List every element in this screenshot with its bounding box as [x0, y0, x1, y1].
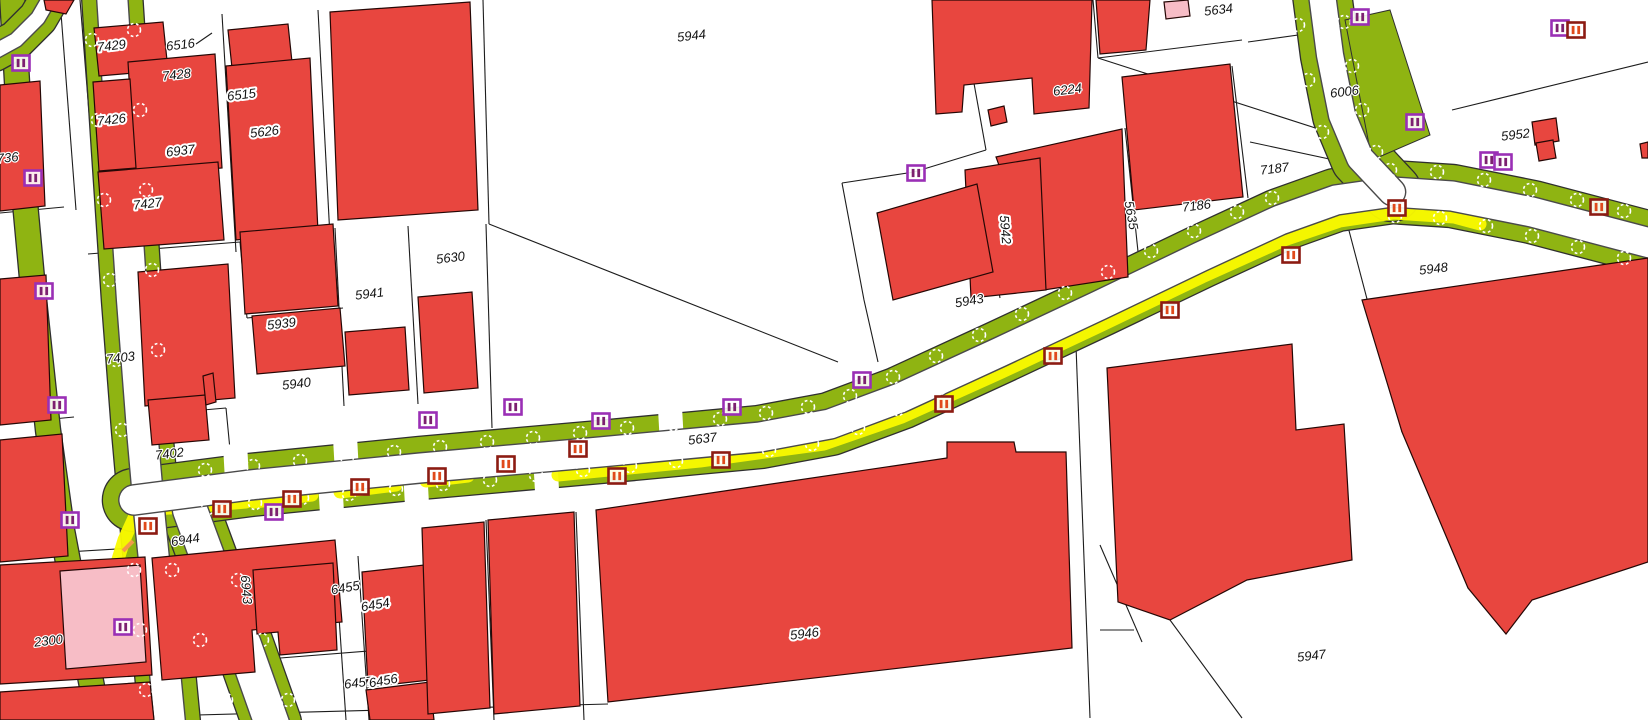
building — [1096, 0, 1150, 54]
utility-symbol-purple-icon — [115, 620, 132, 635]
utility-symbol-purple-icon — [36, 284, 53, 299]
utility-symbol-purple-icon — [1552, 21, 1569, 36]
utility-symbol-red-icon — [284, 492, 301, 507]
building — [345, 327, 409, 395]
utility-symbol-red-icon — [713, 453, 730, 468]
utility-symbol-purple-icon — [724, 400, 741, 415]
utility-symbol-red-icon — [1568, 23, 1585, 38]
utility-symbol-purple-icon — [505, 400, 522, 415]
parcel-label: 6943 — [238, 575, 256, 606]
building — [1640, 142, 1648, 158]
map-canvas[interactable]: 7367429651674286515562674266937742759446… — [0, 0, 1648, 720]
utility-symbol-purple-icon — [49, 398, 66, 413]
building — [1164, 0, 1190, 19]
building — [330, 2, 478, 220]
building — [240, 224, 338, 314]
utility-symbol-red-icon — [1389, 201, 1406, 216]
utility-symbol-red-icon — [609, 469, 626, 484]
building — [203, 373, 216, 405]
utility-symbol-red-icon — [352, 480, 369, 495]
building — [1536, 140, 1556, 161]
utility-symbol-red-icon — [214, 502, 231, 517]
building — [226, 58, 318, 240]
utility-symbol-purple-icon — [1352, 10, 1369, 25]
utility-symbol-red-icon — [936, 397, 953, 412]
utility-symbol-red-icon — [429, 469, 446, 484]
building — [422, 522, 490, 714]
building — [488, 512, 580, 714]
utility-symbol-purple-icon — [25, 171, 42, 186]
utility-symbol-red-icon — [498, 457, 515, 472]
utility-symbol-purple-icon — [593, 414, 610, 429]
utility-symbol-purple-icon — [420, 413, 437, 428]
building — [148, 395, 209, 445]
utility-symbol-purple-icon — [1495, 155, 1512, 170]
utility-symbol-purple-icon — [13, 56, 30, 71]
utility-symbol-red-icon — [570, 442, 587, 457]
utility-symbol-purple-icon — [1407, 115, 1424, 130]
building — [362, 565, 430, 687]
utility-symbol-purple-icon — [266, 505, 283, 520]
building — [0, 81, 45, 211]
gis-map-view: 7367429651674286515562674266937742759446… — [0, 0, 1648, 720]
parcel-label: 736 — [0, 149, 20, 166]
utility-symbol-red-icon — [1283, 248, 1300, 263]
utility-symbol-red-icon — [140, 519, 157, 534]
building — [138, 264, 235, 406]
utility-symbol-red-icon — [1162, 303, 1179, 318]
parcel-label: 5942 — [997, 215, 1015, 246]
building — [1122, 64, 1243, 210]
building — [988, 106, 1007, 126]
building — [60, 565, 146, 669]
building — [418, 292, 478, 393]
utility-symbol-purple-icon — [854, 373, 871, 388]
building — [0, 434, 68, 562]
utility-symbol-red-icon — [1591, 200, 1608, 215]
utility-symbol-purple-icon — [908, 166, 925, 181]
utility-symbol-red-icon — [1045, 349, 1062, 364]
utility-symbol-purple-icon — [62, 513, 79, 528]
